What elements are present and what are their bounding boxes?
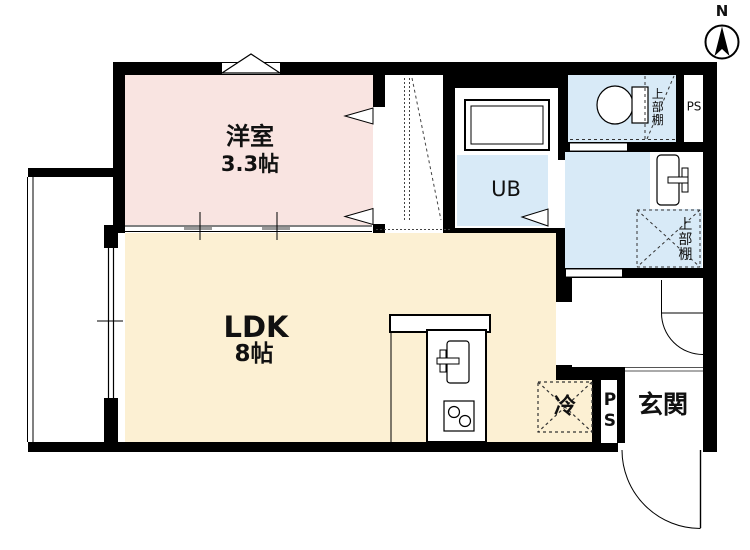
wall [676,73,684,143]
unit-bath-label: UB [491,178,521,200]
refrigerator-label: 冷 [554,395,576,418]
western-room-name: 洋室 [226,124,274,149]
compass-icon [706,26,739,59]
compass-north-label: N [716,4,729,20]
ldk-hall-threshold [556,302,572,365]
top-window-gap [222,63,280,74]
balcony-rail [28,177,34,442]
entrance-door-arc [622,450,701,529]
ldk-room [125,233,556,442]
pipe-space-top-label: PS [687,101,702,114]
upper-shelf-toilet-label: 上部棚 [651,88,664,127]
unit-bath-door [550,160,566,228]
wall-top [115,62,705,75]
closet-door-stub-top [373,62,385,107]
washroom-door [566,269,622,277]
floor-plan-canvas: 洋室 3.3帖 LDK 8帖 UB 玄関 冷 PS PS 上部棚 上部棚 N [0,0,750,550]
upper-shelf-washroom-label: 上部棚 [677,217,692,262]
ldk-window-icon [97,248,123,398]
closet [385,75,443,225]
pipe-space-bottom-label: PS [600,390,618,432]
sliding-door-band [125,225,373,233]
wall-right [703,62,717,452]
wall-bottom [28,442,618,452]
closet-door-stub-bottom [373,224,385,233]
washbasin-area [650,152,702,209]
wall [556,365,625,380]
closet-door-strip [373,107,385,224]
western-room-size: 3.3帖 [221,153,279,175]
wall-left [113,62,125,233]
ldk-name: LDK [223,312,288,342]
ldk-size: 8帖 [234,342,273,366]
ldk-window-stub-bottom [104,398,118,442]
toilet-door [570,143,627,151]
entrance-label: 玄関 [638,392,688,418]
balcony-top-wall [28,168,115,177]
entrance-step-line [625,368,703,372]
ldk-window-stub-top [104,225,118,248]
hall [572,278,703,367]
